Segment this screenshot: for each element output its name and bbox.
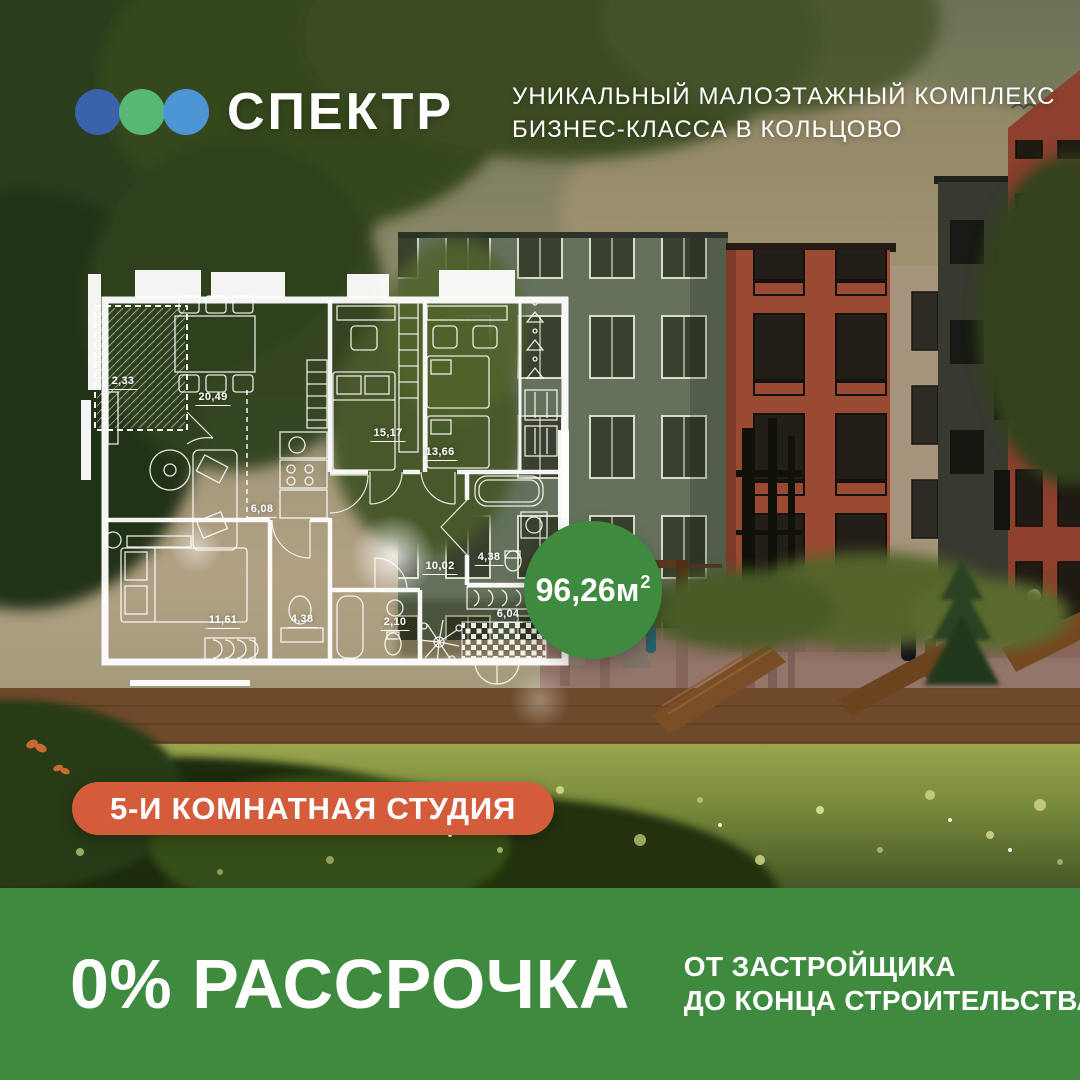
floor-plan: 2,33 20,49 15,17 13,66 6,08 11,61 4,38 2… <box>75 260 575 715</box>
logo-dot-icon <box>119 89 165 135</box>
logo-dot-icon <box>163 89 209 135</box>
tagline-line2: БИЗНЕС-КЛАССА В КОЛЬЦОВО <box>512 113 1056 146</box>
room-area-label: 6,04 <box>494 609 523 623</box>
offer-note: ОТ ЗАСТРОЙЩИКА ДО КОНЦА СТРОИТЕЛЬСТВА <box>684 950 1080 1018</box>
plan-walls <box>95 300 565 662</box>
logo <box>75 88 217 136</box>
room-area-label: 13,66 <box>422 447 457 461</box>
room-area-label: 2,10 <box>381 617 410 631</box>
total-area-sup: 2 <box>640 572 650 593</box>
room-area-label: 4,38 <box>288 614 317 628</box>
room-area-label: 11,61 <box>206 615 240 629</box>
room-area-label: 2,33 <box>109 376 138 390</box>
logo-dot-icon <box>75 89 121 135</box>
total-area-value: 96,26м <box>536 572 640 609</box>
plant-icon <box>419 620 462 664</box>
room-area-label: 6,08 <box>248 504 277 518</box>
offer-bar: 0% РАССРОЧКА ОТ ЗАСТРОЙЩИКА ДО КОНЦА СТР… <box>0 888 1080 1080</box>
total-area-badge: 96,26м2 <box>524 521 662 659</box>
logo-text: СПЕКТР <box>227 82 454 142</box>
apartment-type-label: 5-И КОМНАТНАЯ СТУДИЯ <box>110 791 516 827</box>
offer-headline: 0% РАССРОЧКА <box>70 944 630 1024</box>
ad-poster: СПЕКТР УНИКАЛЬНЫЙ МАЛОЭТАЖНЫЙ КОМПЛЕКС Б… <box>0 0 1080 1080</box>
tagline-line1: УНИКАЛЬНЫЙ МАЛОЭТАЖНЫЙ КОМПЛЕКС <box>512 80 1056 113</box>
tagline: УНИКАЛЬНЫЙ МАЛОЭТАЖНЫЙ КОМПЛЕКС БИЗНЕС-К… <box>512 80 1056 146</box>
room-area-label: 10,02 <box>422 561 457 575</box>
room-area-label: 20,49 <box>195 392 230 406</box>
header: СПЕКТР <box>75 82 454 142</box>
apartment-type-badge: 5-И КОМНАТНАЯ СТУДИЯ <box>72 782 554 835</box>
offer-note-line2: ДО КОНЦА СТРОИТЕЛЬСТВА <box>684 984 1080 1018</box>
room-area-label: 4,38 <box>475 552 504 566</box>
offer-note-line1: ОТ ЗАСТРОЙЩИКА <box>684 950 1080 984</box>
room-area-label: 15,17 <box>370 428 405 442</box>
